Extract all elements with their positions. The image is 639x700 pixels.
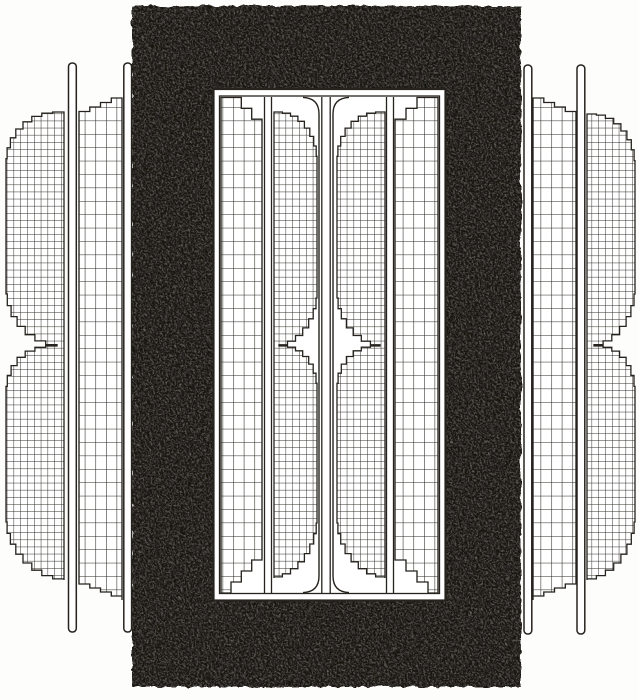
strip-coil-window-left [221, 98, 262, 594]
outer-rail-2 [124, 63, 132, 632]
strip-coil-outer-right [533, 98, 576, 600]
engraving-figure [0, 0, 639, 700]
outer-rail-4 [577, 65, 585, 634]
strip-coil-outer-left [79, 98, 122, 600]
strip-coil-window-right [395, 98, 438, 594]
outer-rail-3 [524, 65, 532, 634]
outer-rail-1 [69, 63, 77, 632]
transformer-cross-section-diagram [0, 0, 639, 700]
